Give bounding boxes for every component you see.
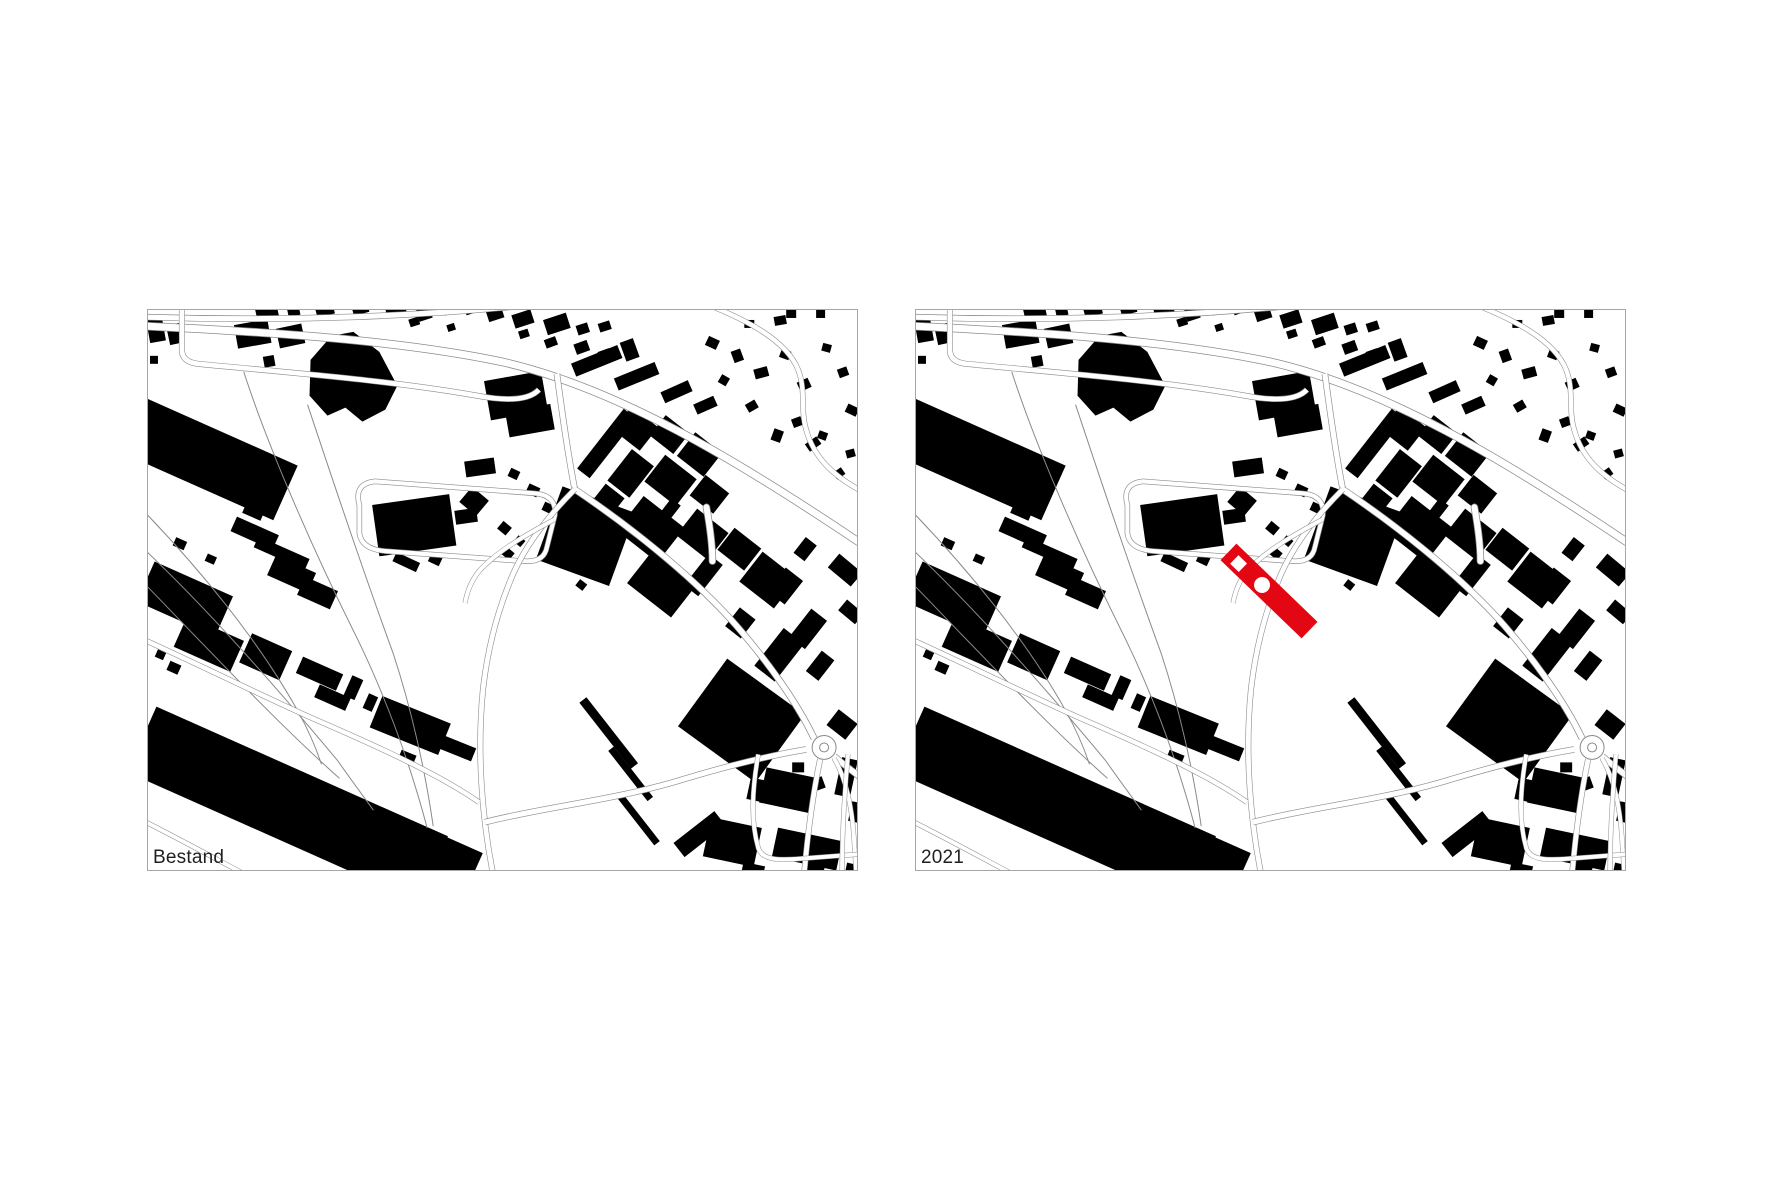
figure-ground-map-2021 (916, 310, 1625, 870)
map-panel-bestand: Bestand (147, 309, 858, 871)
page: Bestand 2021 (0, 0, 1772, 1181)
map-label-2021: 2021 (921, 848, 964, 867)
figure-ground-map-bestand (148, 310, 857, 870)
map-panel-2021: 2021 (915, 309, 1626, 871)
map-label-bestand: Bestand (153, 848, 224, 867)
